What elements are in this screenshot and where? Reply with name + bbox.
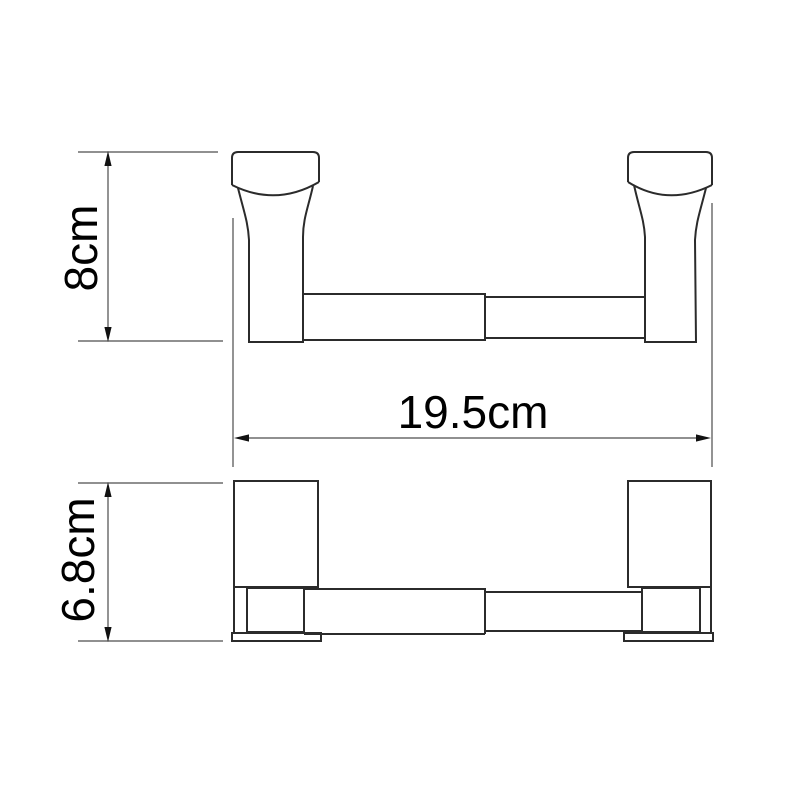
width-dimension-label: 19.5cm: [398, 389, 549, 435]
side-right-post-body: [628, 481, 711, 587]
side-right-post: [624, 481, 713, 641]
side-left-post: [232, 481, 321, 641]
side-view: [232, 481, 713, 641]
side-right-inner-box: [642, 588, 700, 632]
front-right-post-cap: [628, 152, 712, 185]
front-bar-outer-tube: [303, 293, 485, 341]
front-view: [232, 152, 712, 342]
front-right-post-cap-arc: [628, 182, 712, 195]
front-right-post-body: [634, 185, 706, 342]
side-left-post-wall: [234, 587, 247, 633]
side-left-post-body: [234, 481, 318, 587]
arrow-up-icon: [104, 482, 111, 497]
side-left-inner-box: [247, 588, 304, 632]
front-bar: [303, 293, 645, 341]
depth-dimension-label: 6.8cm: [55, 497, 101, 622]
arrow-up-icon: [104, 151, 111, 166]
arrow-down-icon: [104, 327, 111, 342]
arrow-right-icon: [696, 434, 711, 441]
side-right-post-wall: [700, 587, 711, 633]
front-bar-inner-tube: [485, 297, 645, 338]
side-bar-inner-tube: [485, 592, 642, 631]
side-bar: [304, 588, 642, 634]
front-left-post-cap-arc: [232, 182, 319, 195]
side-right-base-plate: [624, 633, 713, 641]
technical-drawing-canvas: 8cm 19.5cm 6.8cm: [0, 0, 800, 800]
front-left-post: [232, 152, 319, 342]
height-dimension-label: 8cm: [58, 205, 104, 292]
front-left-post-cap: [232, 152, 319, 185]
arrow-left-icon: [234, 434, 249, 441]
front-right-post: [628, 152, 712, 342]
arrow-down-icon: [104, 627, 111, 642]
front-left-post-body: [238, 186, 313, 342]
side-bar-outer-tube: [304, 588, 485, 634]
